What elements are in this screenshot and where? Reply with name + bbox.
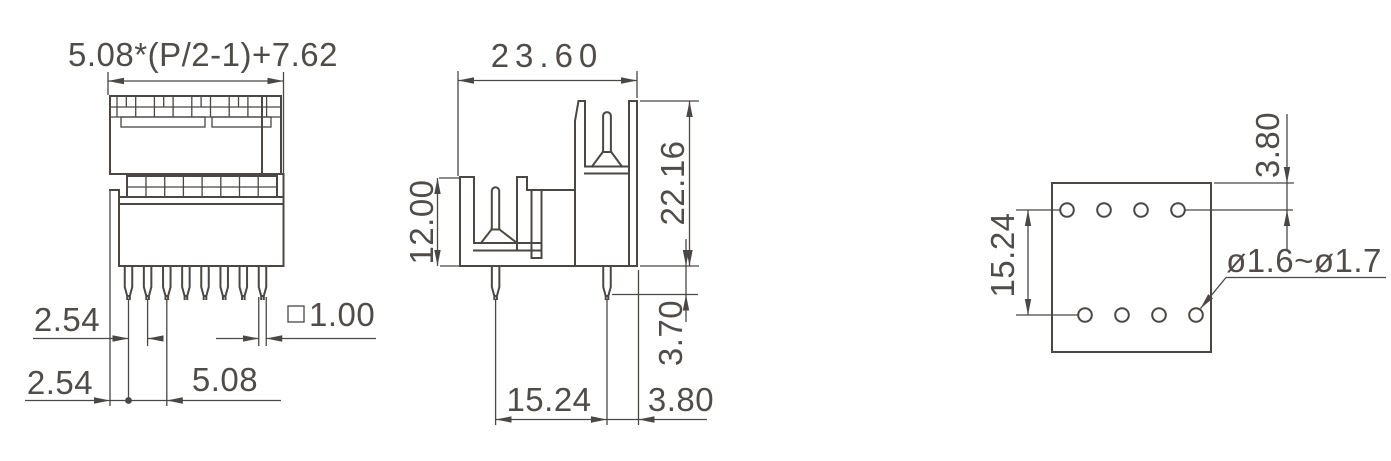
- side-clamp-right: [592, 112, 622, 166]
- side-pins: [492, 266, 611, 299]
- front-upper-teeth: [110, 96, 281, 117]
- footprint-holes-bottom-row: [1078, 308, 1203, 322]
- side-view: 23.60 12.00 22.16 3.70 15.24 3.80: [403, 37, 714, 425]
- side-body: [460, 101, 637, 266]
- mounting-hole: [1097, 203, 1111, 217]
- terminal-block-drawing: 5.08*(P/2-1)+7.62 2.54 2.54 5.08 1.00: [0, 0, 1391, 461]
- footprint-holes-top-row: [1060, 203, 1185, 217]
- front-lower-teeth: [127, 176, 277, 197]
- mounting-hole: [1189, 308, 1203, 322]
- mounting-hole: [1115, 308, 1129, 322]
- side-slot: [532, 190, 542, 258]
- dim-front-edge-to-pin: 2.54: [27, 364, 93, 401]
- dim-footprint-edge-to-row: 3.80: [1249, 112, 1286, 178]
- dim-front-square-pin-value: 1.00: [309, 296, 375, 333]
- side-clamp-left: [481, 187, 517, 243]
- dim-front-pin-pitch: 2.54: [34, 301, 100, 338]
- dim-front-double-pitch: 5.08: [192, 361, 258, 398]
- footprint-dimensions: 15.24 3.80 ø1.6~ø1.7: [984, 112, 1386, 315]
- mounting-hole: [1134, 203, 1148, 217]
- dim-side-depth: 23.60: [491, 37, 604, 74]
- square-symbol: [288, 306, 304, 322]
- mounting-hole: [1171, 203, 1185, 217]
- side-dimensions: 23.60 12.00 22.16 3.70 15.24 3.80: [403, 37, 714, 425]
- dim-footprint-row-spacing: 15.24: [984, 212, 1021, 297]
- mounting-hole: [1078, 308, 1092, 322]
- dim-side-overall-height: 22.16: [654, 140, 691, 225]
- mounting-hole: [1060, 203, 1074, 217]
- dim-origin-dot: [125, 397, 132, 404]
- dim-front-overall-width: 5.08*(P/2-1)+7.62: [68, 36, 338, 73]
- mounting-hole: [1152, 308, 1166, 322]
- dim-footprint-hole-diameter: ø1.6~ø1.7: [1226, 242, 1382, 279]
- dim-side-pin-row-spacing: 15.24: [506, 381, 591, 418]
- front-dimensions: 5.08*(P/2-1)+7.62 2.54 2.54 5.08 1.00: [25, 36, 376, 406]
- dim-side-front-height: 12.00: [403, 179, 440, 264]
- technical-drawing-canvas: 5.08*(P/2-1)+7.62 2.54 2.54 5.08 1.00: [0, 0, 1391, 461]
- front-lower-body: [110, 174, 284, 266]
- dim-front-square-pin: 1.00: [288, 296, 375, 333]
- front-pins: [125, 266, 267, 299]
- front-upper-body: [110, 96, 284, 174]
- footprint-outline: [1052, 183, 1211, 352]
- front-upper-tab-left: [121, 117, 205, 127]
- front-view: 5.08*(P/2-1)+7.62 2.54 2.54 5.08 1.00: [25, 36, 376, 406]
- dim-side-pin-protrusion: 3.70: [652, 300, 689, 366]
- dim-side-pin-to-edge: 3.80: [648, 381, 714, 418]
- pcb-footprint-view: 15.24 3.80 ø1.6~ø1.7: [984, 112, 1386, 352]
- leader-arrow: [1201, 278, 1227, 309]
